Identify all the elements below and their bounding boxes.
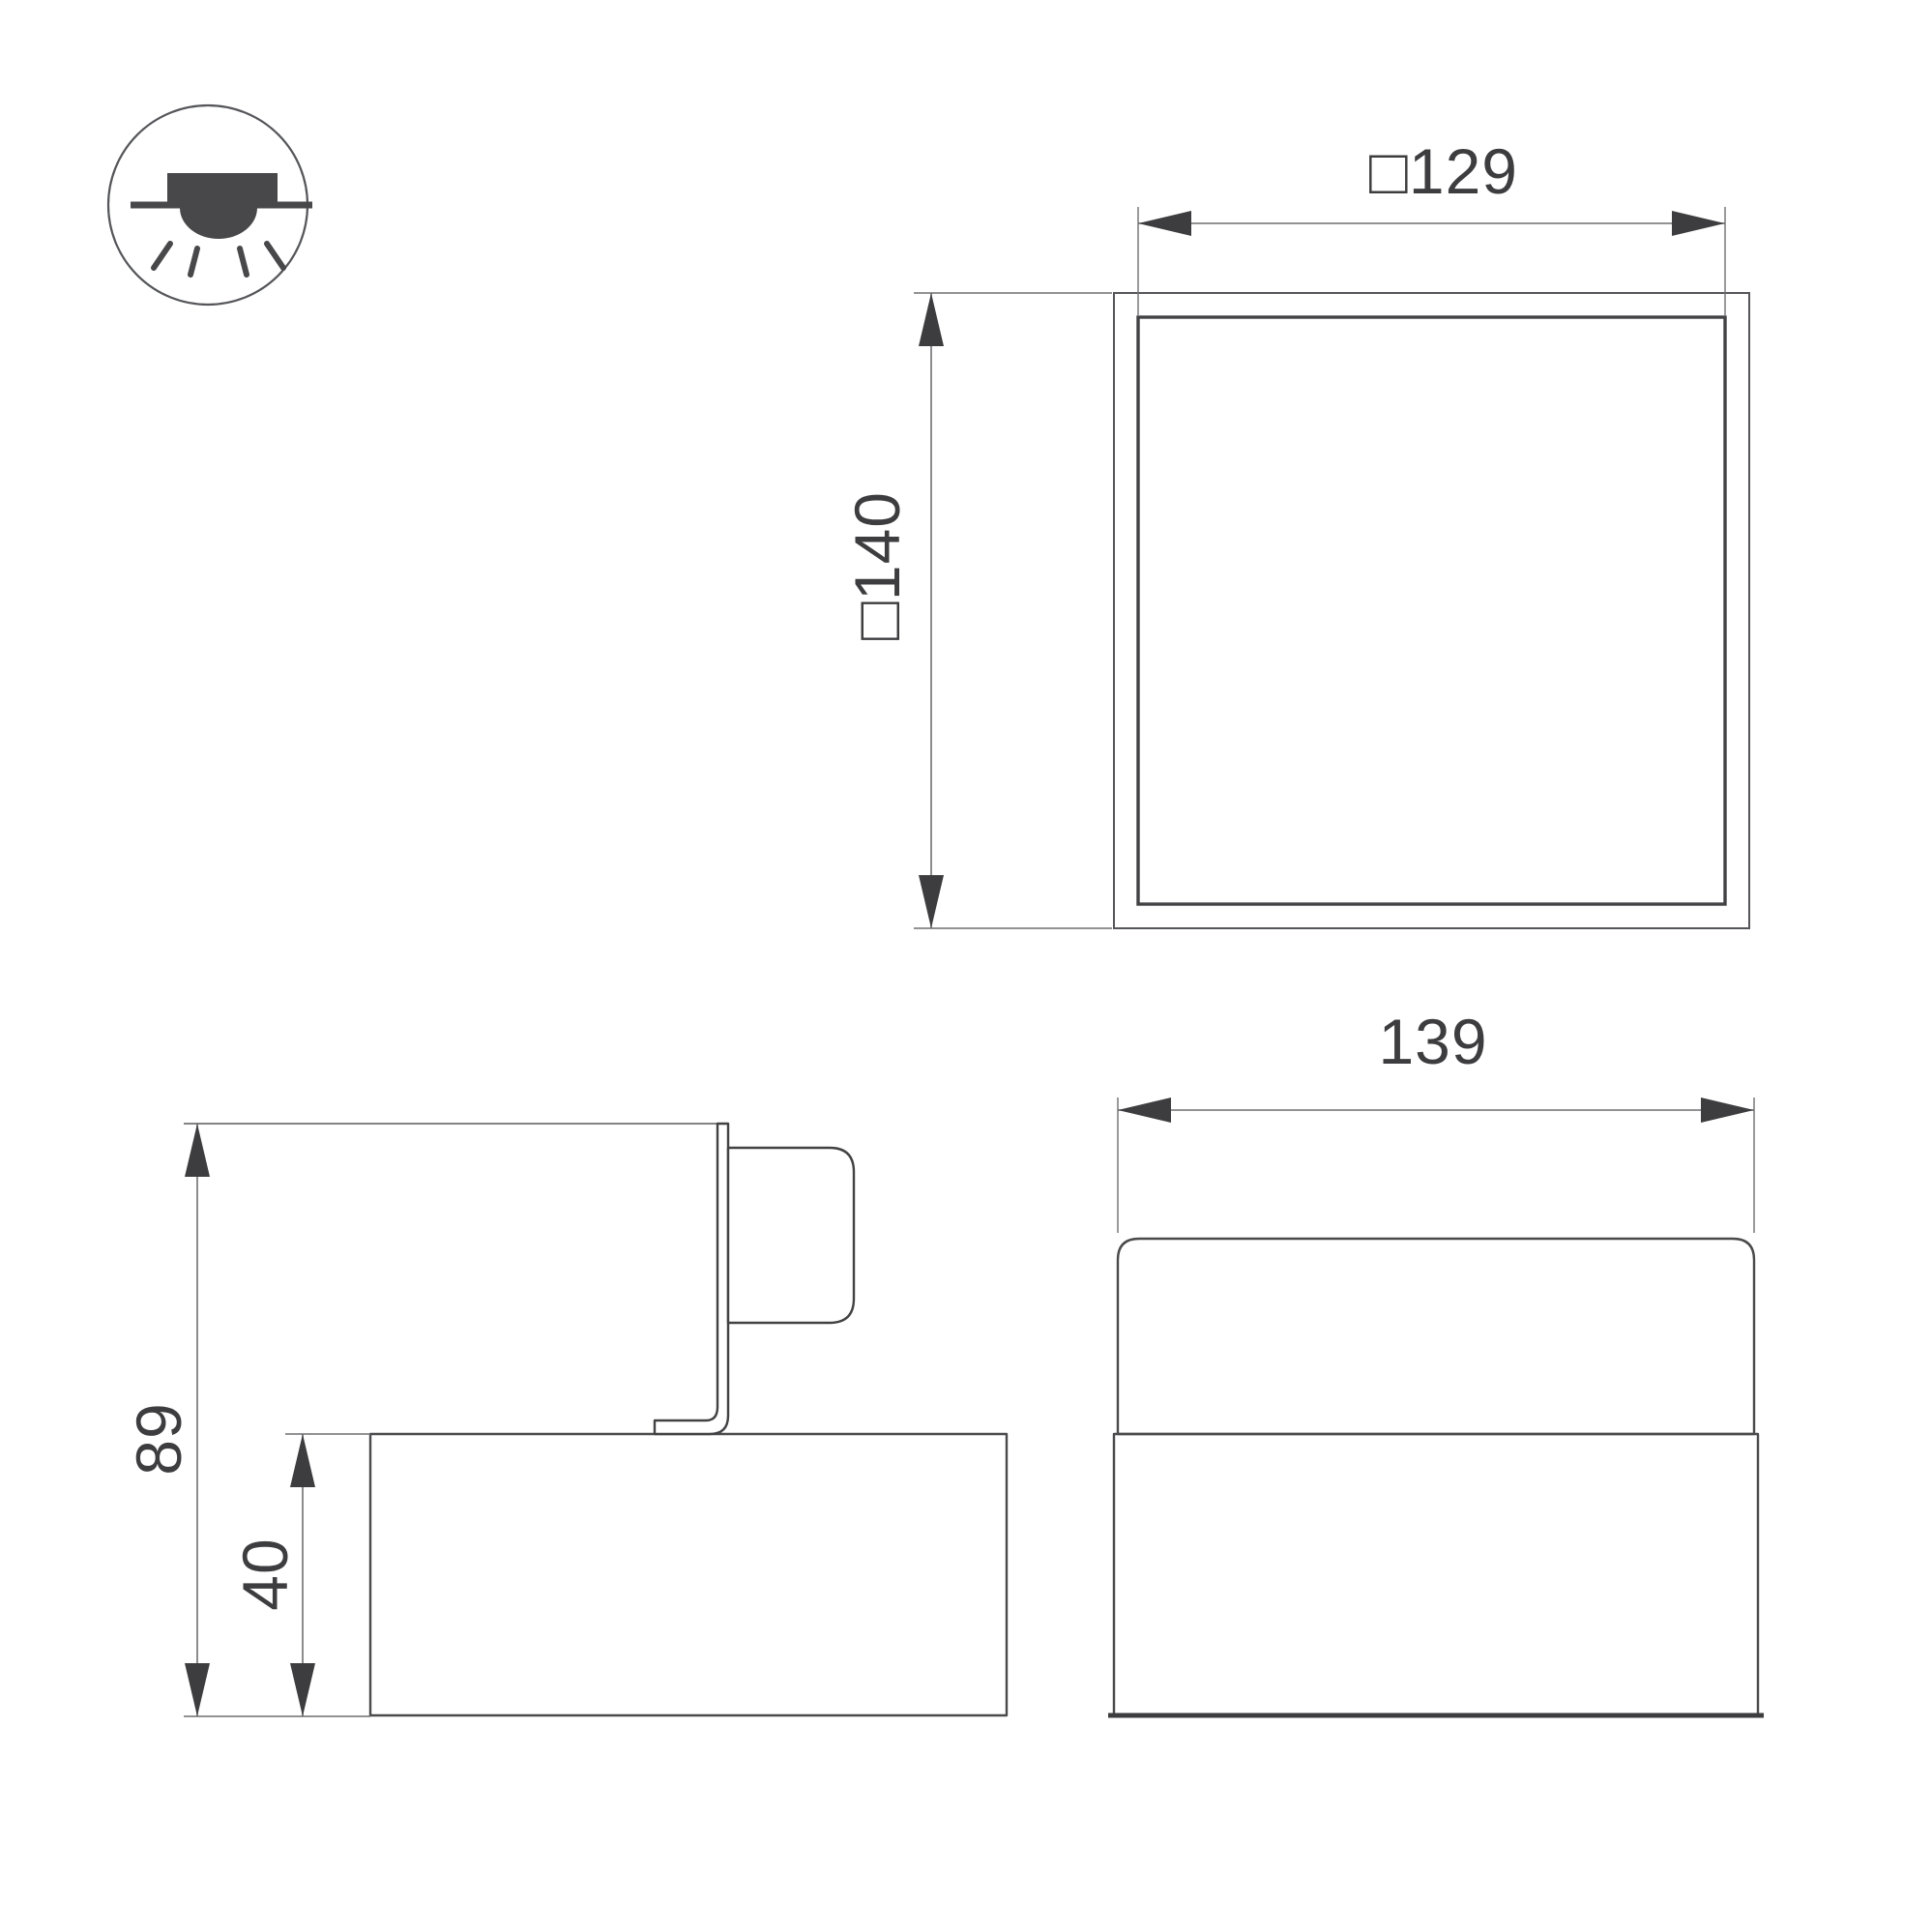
arrowhead-up xyxy=(919,293,944,346)
arrowhead-left xyxy=(1118,1098,1171,1123)
dim-label-height: 89 xyxy=(123,1402,194,1475)
dim-label-cutout: □129 xyxy=(1369,135,1518,207)
arrowhead-up xyxy=(185,1124,210,1177)
trim-outline xyxy=(1114,293,1749,928)
dim-label-width: 139 xyxy=(1378,1006,1487,1077)
mounting-type-icon xyxy=(108,105,312,305)
surface-box-outline xyxy=(370,1434,1007,1715)
dimension-cutout: □129 xyxy=(1138,135,1725,315)
aperture-outline xyxy=(1138,317,1725,904)
dimension-width: 139 xyxy=(1118,1006,1754,1233)
dim-label-overall: □140 xyxy=(841,491,913,640)
lamp-body-outline xyxy=(1118,1239,1754,1434)
arrowhead-right xyxy=(1701,1098,1754,1123)
top-view: □129 □140 xyxy=(841,135,1749,928)
dimension-height: 89 xyxy=(123,1124,370,1716)
arrowhead-up xyxy=(290,1434,315,1487)
arrowhead-right xyxy=(1672,211,1725,236)
arrowhead-down xyxy=(290,1663,315,1716)
technical-drawing-canvas: □129 □140 xyxy=(0,0,1932,1932)
arrowhead-down xyxy=(919,875,944,928)
side-view: 89 40 xyxy=(123,1124,1007,1716)
dim-label-recess: 40 xyxy=(229,1537,301,1610)
driver-box xyxy=(728,1148,854,1323)
icon-housing xyxy=(167,173,278,205)
dimension-overall: □140 xyxy=(841,293,1112,928)
base-box-outline xyxy=(1114,1434,1758,1715)
front-view: 139 xyxy=(1108,1006,1764,1715)
dimension-recess: 40 xyxy=(229,1434,370,1716)
mounting-bracket xyxy=(655,1124,728,1434)
arrowhead-down xyxy=(185,1663,210,1716)
arrowhead-left xyxy=(1138,211,1191,236)
dimension-drawing: □129 □140 xyxy=(0,0,1932,1932)
